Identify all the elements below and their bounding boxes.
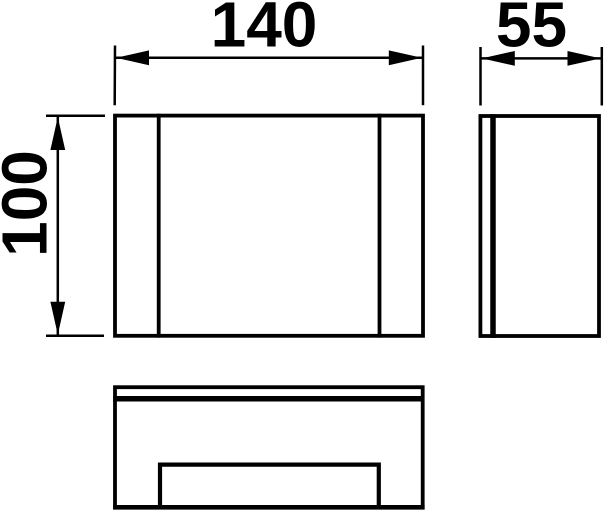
svg-text:55: 55	[496, 0, 567, 61]
svg-text:140: 140	[211, 0, 318, 61]
svg-text:100: 100	[0, 150, 61, 257]
